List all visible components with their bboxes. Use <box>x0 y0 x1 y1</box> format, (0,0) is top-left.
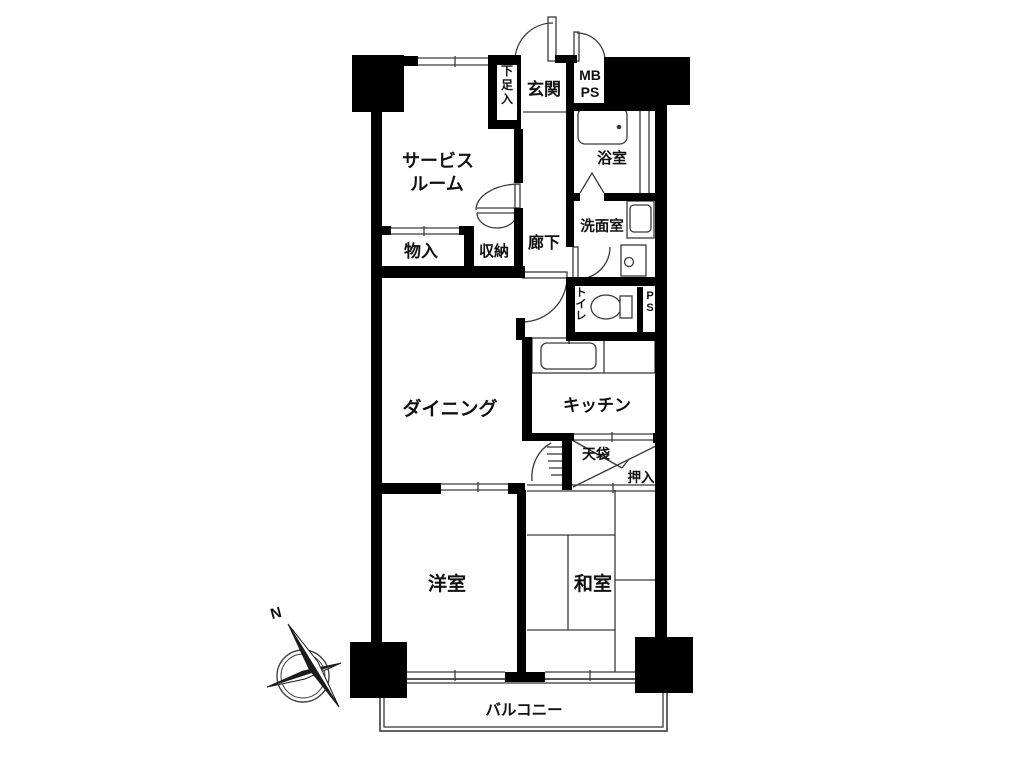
kitchen-label: キッチン <box>563 396 631 415</box>
overhead-closet-label: 天袋 <box>582 446 611 462</box>
meter-box-label-line1: MB <box>579 67 601 83</box>
closet-label: 収納 <box>479 242 509 260</box>
pillar-top-left <box>352 55 404 112</box>
pillar-bottom-right <box>635 637 693 693</box>
storage-label: 物入 <box>404 241 438 261</box>
washing-machine <box>627 201 654 238</box>
service-room-label-line1: サービス <box>402 151 474 171</box>
western-room-label: 洋室 <box>428 572 466 595</box>
bathroom-label: 浴室 <box>597 149 627 167</box>
futon-closet-label: 押入 <box>628 469 656 485</box>
pipe-space-label: PS <box>646 290 653 314</box>
service-room-label-line2: ルーム <box>410 174 463 194</box>
hallway-label: 廊下 <box>528 233 560 252</box>
page-background <box>0 0 1024 768</box>
japanese-room-label: 和室 <box>574 572 612 595</box>
washroom-label: 洗面室 <box>580 217 624 235</box>
dining-label: ダイニング <box>402 397 497 420</box>
pillar-top-right <box>630 57 690 105</box>
entrance-label: 玄関 <box>527 79 561 99</box>
pillar-bottom-left <box>350 642 407 698</box>
shoe-storage-label: 下足入 <box>501 64 513 106</box>
meter-box-label-line2: PS <box>581 84 600 100</box>
washbasin <box>621 245 646 276</box>
balcony-label: バルコニー <box>485 701 562 719</box>
floor-plan-page: 下足入 玄関 MB PS 浴室 サービス ルーム 洗面室 廊下 物入 収納 トイ… <box>0 0 1024 768</box>
toilet-label: トイレ <box>576 286 587 322</box>
floor-plan: 下足入 玄関 MB PS 浴室 サービス ルーム 洗面室 廊下 物入 収納 トイ… <box>0 0 1024 768</box>
toilet-fixture <box>591 295 632 319</box>
